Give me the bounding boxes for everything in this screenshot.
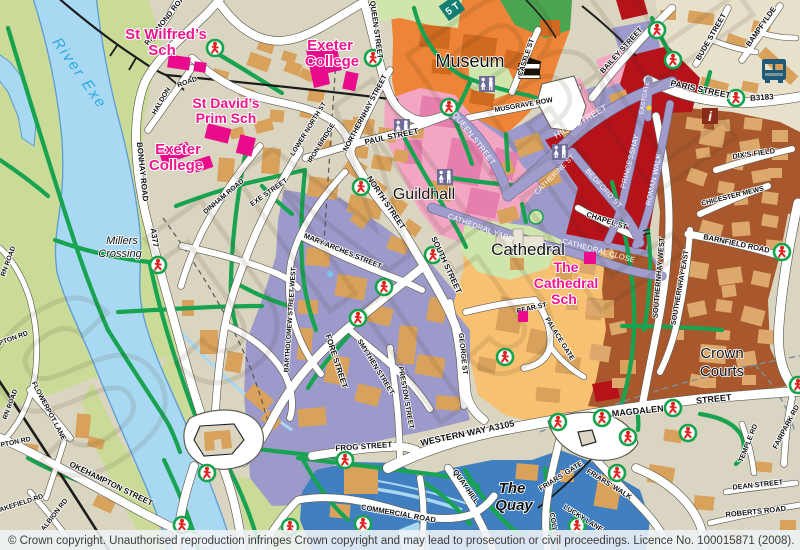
svg-text:Millers: Millers: [106, 235, 138, 247]
svg-text:Sch: Sch: [148, 42, 176, 59]
svg-text:Crossing: Crossing: [98, 248, 142, 260]
svg-text:The: The: [499, 480, 526, 497]
svg-text:College: College: [305, 53, 359, 70]
svg-text:Guildhall: Guildhall: [393, 186, 455, 203]
svg-text:Prim Sch: Prim Sch: [196, 110, 257, 126]
svg-text:Cathedral: Cathedral: [491, 240, 565, 259]
svg-text:© Crown copyright. Unauthorise: © Crown copyright. Unauthorised reproduc…: [8, 535, 794, 547]
svg-text:Quay: Quay: [495, 497, 533, 514]
svg-text:Cathedral: Cathedral: [534, 275, 599, 291]
svg-text:Courts: Courts: [700, 363, 744, 380]
svg-text:Museum: Museum: [435, 51, 504, 71]
svg-text:B3183: B3183: [750, 92, 775, 103]
svg-text:St David’s: St David’s: [192, 95, 259, 111]
svg-text:The: The: [554, 259, 579, 275]
svg-text:College: College: [149, 157, 203, 174]
svg-text:Sch: Sch: [551, 291, 577, 307]
svg-text:Exeter: Exeter: [307, 37, 353, 54]
svg-text:St Wilfred’s: St Wilfred’s: [125, 26, 207, 43]
svg-text:Crown: Crown: [700, 345, 743, 362]
svg-text:Exeter: Exeter: [155, 141, 201, 158]
